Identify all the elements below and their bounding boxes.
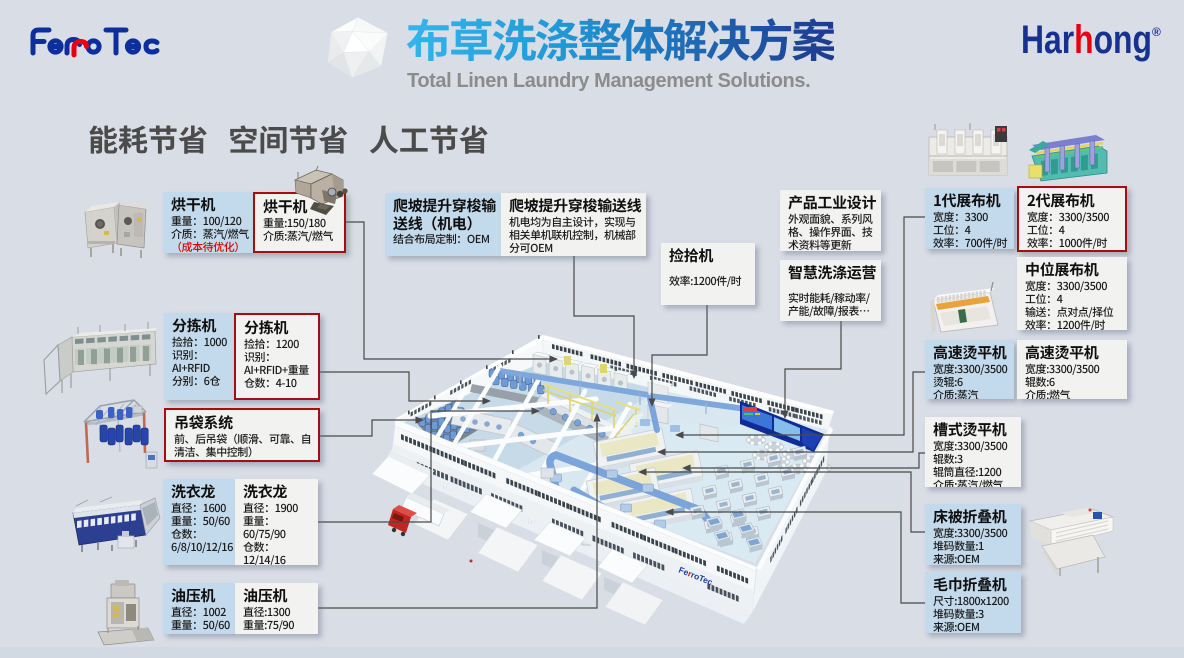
svg-text:FerroTec: FerroTec	[677, 565, 714, 588]
svg-text:®: ®	[1152, 25, 1161, 39]
svg-text:Harhong: Harhong	[1021, 18, 1152, 62]
